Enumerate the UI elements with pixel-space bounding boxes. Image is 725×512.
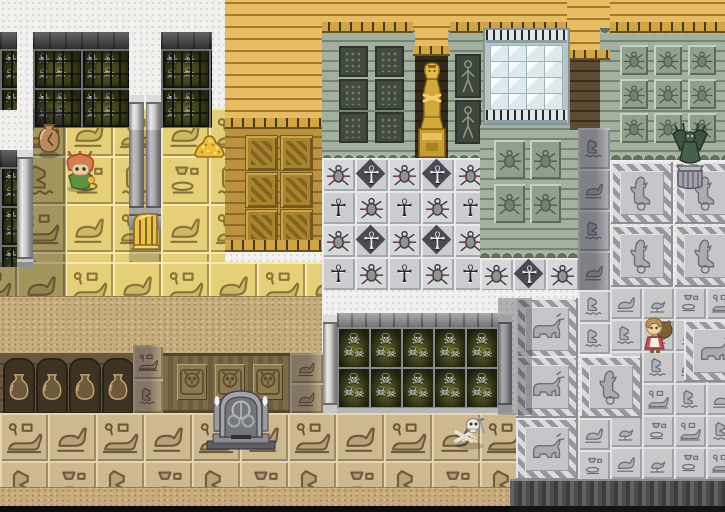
lion-face-panel [177, 364, 207, 400]
gold-roof-left [225, 0, 322, 122]
skull-icon: ☠ [439, 386, 451, 399]
ankh-icon: ☥ [388, 191, 421, 224]
green-wall-mid [448, 30, 483, 160]
tile-duck [144, 413, 192, 461]
wall-panel-figure [455, 100, 481, 144]
scarab-relief-icon [622, 81, 646, 107]
tile-duck [336, 413, 384, 461]
skull-cage: ☠☠☠☠ [0, 206, 17, 247]
glass-block [526, 61, 545, 78]
mid-glyph-column-a [133, 345, 163, 413]
tile-bowls [432, 461, 480, 487]
heron-relief-icon [622, 173, 662, 213]
wall-panel-dark [339, 46, 368, 77]
tile-eagle [674, 383, 706, 415]
crenellation-alcove [413, 46, 450, 56]
tile-duck [610, 447, 642, 479]
eagle-glyph-icon [582, 294, 606, 318]
lion-face-icon [178, 366, 206, 398]
bowls-glyph-icon [165, 160, 205, 200]
panel-grid-ornament-icon [380, 51, 399, 72]
wall-panel-dark [375, 112, 404, 143]
eagle-glyph-icon [196, 465, 236, 487]
bowls-glyph-icon [340, 465, 380, 487]
tile-ankh: ☥ [355, 224, 388, 257]
scarab-glyph-icon [358, 194, 385, 221]
wall-panel-scarab [620, 79, 648, 109]
bird-glyph-icon [646, 451, 670, 475]
crenellation-column [567, 50, 610, 60]
bowls-glyph-icon [678, 451, 702, 475]
tile-lion92 [674, 415, 706, 447]
wall-top-band [33, 32, 129, 49]
tile-eagle [384, 461, 432, 487]
duck-glyph-icon [309, 266, 322, 296]
relief-face [684, 234, 725, 278]
eagle-glyph-icon [582, 326, 606, 350]
relief-face [620, 171, 664, 215]
lion92-glyph-icon [4, 417, 44, 457]
scarab-relief-icon [656, 47, 680, 73]
tile-lion92 [706, 287, 725, 319]
tile-duck [48, 413, 96, 461]
tile-bowls [674, 287, 706, 319]
tile-eagle [706, 415, 725, 447]
dark-brick-column [570, 54, 600, 130]
tile-eagle [209, 252, 225, 262]
tile-ankh: ☥ [454, 191, 480, 224]
tile-ankh: ☥ [454, 257, 480, 290]
cliff-band [510, 479, 725, 512]
lion92-glyph-icon [100, 417, 140, 457]
figure-relief-icon [458, 57, 478, 95]
tile-scarab [421, 191, 454, 224]
gold-door-panel [245, 135, 278, 171]
skull-icon: ☠ [343, 386, 355, 399]
scarab-relief-icon [656, 81, 680, 107]
glass-block [508, 77, 527, 94]
skull-icon: ☠ [375, 346, 387, 359]
gold-door-panel [280, 172, 313, 208]
urn-icon [39, 364, 65, 410]
skull-niche: ☠☠☠ [337, 327, 371, 369]
wall-panel-scarab [688, 79, 716, 109]
panel-grid-ornament-icon [380, 117, 399, 138]
scarab-relief-icon [622, 115, 646, 141]
cage-bars-icon [2, 51, 17, 88]
tile-lion92 [96, 413, 144, 461]
green-wall-left [322, 30, 415, 160]
glass-block [490, 45, 509, 62]
skull-icon: ☠ [450, 347, 461, 359]
cage-bars-icon [2, 208, 17, 245]
cage-bars-icon [83, 51, 129, 88]
cage-bars-icon [211, 51, 212, 88]
tile-large-heron [675, 225, 725, 287]
lion92-glyph-icon [678, 419, 702, 443]
gold-pile[interactable] [193, 123, 226, 159]
skull-icon: ☠ [450, 387, 461, 399]
ankh-icon: ☥ [322, 191, 355, 224]
bowls-glyph-icon [148, 465, 188, 487]
crenellation-roof-left [225, 118, 322, 129]
ankh-icon: ☥ [421, 224, 454, 257]
mid-glyph-column-b [290, 353, 323, 413]
tile-eagle [96, 461, 144, 487]
relief-face [525, 427, 569, 471]
wall-top-band [161, 32, 212, 49]
skull-icon: ☠ [407, 346, 419, 359]
tile-lion92 [161, 262, 209, 296]
scarab-glyph-icon [358, 260, 385, 287]
pillar-capital [323, 315, 337, 324]
glass-block [508, 93, 527, 110]
relief-face [693, 329, 725, 373]
tile-scarab [355, 257, 388, 290]
eagle-glyph-icon [614, 323, 638, 347]
tile-eagle [578, 322, 610, 354]
tile-duck [209, 262, 257, 296]
urn-icon [105, 364, 131, 410]
duck-glyph-icon [340, 417, 380, 457]
gold-panel-ornament-icon [251, 141, 272, 165]
map-layers: ☠☠☠☠☠☠☠☠☠☠☠☠☠☠☠☠☠☠☠☠☠☠☠☠☠☠☠☠☠☠☠☠☠☠☠☠☠☠☠☠… [0, 0, 725, 512]
tile-bird [610, 415, 642, 447]
skull-icon: ☠ [354, 387, 365, 399]
pillar-capital [129, 95, 144, 104]
crenellation-c [610, 22, 725, 33]
tile-scarab [322, 224, 355, 257]
tile-large-bull [684, 320, 725, 382]
skull-niche: ☠☠☠ [369, 327, 403, 369]
ankh-icon: ☥ [421, 158, 454, 191]
eagle-glyph-icon [213, 160, 225, 200]
tile-lion92 [257, 262, 305, 296]
cage-bars-icon [35, 51, 81, 88]
skull-cage: ☠☠☠☠ [209, 49, 212, 90]
gold-panel-ornament-icon [286, 141, 307, 165]
skull-icon: ☠ [439, 346, 451, 359]
urn-niche [36, 358, 68, 413]
window [483, 28, 570, 125]
glass-block [508, 45, 527, 62]
tile-bowls [674, 447, 706, 479]
gold-panel-ornament-icon [286, 215, 307, 239]
mandragora-sprite[interactable] [63, 151, 98, 193]
pillar-capital [146, 95, 161, 104]
tile-eagle [192, 461, 240, 487]
ankh-icon: ☥ [355, 158, 388, 191]
cage-bars-icon [211, 90, 212, 127]
tile-ankh: ☥ [421, 158, 454, 191]
crenellation-a [322, 22, 413, 33]
scarab-relief-icon [690, 81, 714, 107]
tile-eagle [0, 461, 48, 487]
skull-icon: ☠ [386, 347, 397, 359]
tile-scarab [388, 158, 421, 191]
wall-panel-scarab [620, 113, 648, 143]
heron-relief-icon [591, 367, 631, 407]
tile-lion92 [706, 447, 725, 479]
bull-relief-icon [695, 331, 725, 371]
bird-glyph-icon [646, 291, 670, 315]
lion92-glyph-icon [710, 291, 725, 315]
skull-icon: ☠ [407, 386, 419, 399]
panel-grid-ornament-icon [380, 84, 399, 105]
wall-top-band [337, 313, 498, 327]
skull-cage: ☠☠☠☠ [161, 88, 211, 128]
tile-eagle [578, 290, 610, 322]
cage-bars-icon [83, 90, 129, 127]
tile-duck [305, 262, 322, 296]
skull-niche: ☠☠☠ [369, 367, 403, 409]
skull-cage: ☠☠☠☠ [0, 88, 17, 110]
tile-bowls [144, 461, 192, 487]
tile-eagle [288, 461, 336, 487]
pharaoh-statue[interactable] [416, 57, 448, 159]
tile-lion92 [209, 204, 225, 252]
urn-niche [69, 358, 101, 413]
wall-top-band [0, 32, 17, 49]
sandy-band-bottom [0, 487, 510, 506]
tile-lion92 [384, 413, 432, 461]
eagle-glyph-icon [100, 465, 140, 487]
scarab-glyph-icon [325, 161, 352, 188]
lion92-glyph-icon [261, 266, 301, 296]
skullcage-c: ☠☠☠☠☠☠☠☠☠☠☠☠ [0, 150, 17, 267]
door-panel-wall [225, 128, 322, 246]
tile-lion92 [65, 262, 113, 296]
game-map-canvas[interactable]: ☠☠☠☠☠☠☠☠☠☠☠☠☠☠☠☠☠☠☠☠☠☠☠☠☠☠☠☠☠☠☠☠☠☠☠☠☠☠☠☠… [0, 0, 725, 512]
ankh-icon: ☥ [454, 191, 480, 224]
glass-block [526, 77, 545, 94]
lion92-glyph-icon [388, 417, 428, 457]
relief-face [589, 365, 633, 409]
duck-glyph-icon [117, 266, 157, 296]
duck-glyph-icon [165, 208, 205, 248]
skull-niche: ☠☠☠ [337, 367, 371, 409]
bowls-glyph-icon [646, 419, 670, 443]
cage-bars-icon [2, 90, 17, 110]
tile-duck [578, 418, 610, 450]
scarab-glyph-icon [391, 161, 418, 188]
lion92-glyph-icon [292, 417, 332, 457]
skull-icon: ☠ [354, 347, 365, 359]
skull-cage: ☠☠☠☠ [0, 49, 17, 90]
tile-lion92 [288, 413, 336, 461]
tile-duck [161, 204, 209, 252]
lion92-glyph-icon [165, 266, 205, 296]
wall-panel-dark [339, 112, 368, 143]
pillar-capital [17, 150, 33, 159]
skull-icon: ☠ [375, 386, 387, 399]
wall-panel-dark [339, 79, 368, 110]
eagle-glyph-icon [388, 465, 428, 487]
scarab-glyph-icon [424, 260, 451, 287]
ankh-icon: ☥ [355, 224, 388, 257]
tile-bowls [65, 252, 113, 262]
tile-duck [113, 262, 161, 296]
pillar-wall-c [17, 150, 33, 267]
tile-bowls [642, 415, 674, 447]
grave-monument[interactable] [205, 379, 277, 451]
scarab-relief-icon [690, 47, 714, 73]
duck-glyph-icon [614, 451, 638, 475]
glass-block [544, 77, 563, 94]
glass-block [544, 45, 563, 62]
cage-bars-icon [163, 90, 209, 127]
skullcage-b: ☠☠☠☠☠☠☠☠☠☠☠☠☠☠☠☠☠☠☠☠☠☠☠☠ [161, 32, 212, 128]
cast-shadow [498, 298, 532, 415]
fence-top-icon [486, 30, 567, 43]
lion92-glyph-icon [213, 208, 225, 248]
gold-panel-ornament-icon [251, 215, 272, 239]
relief-face [620, 234, 664, 278]
wall-panel-scarab [620, 45, 648, 75]
tile-duck [706, 383, 725, 415]
tile-ankh: ☥ [388, 257, 421, 290]
wall-panel-figure [455, 54, 481, 98]
glass-block [544, 61, 563, 78]
figure-relief-icon [458, 103, 478, 141]
glass-block [508, 61, 527, 78]
ankh-icon: ☥ [454, 257, 480, 290]
panel-grid-ornament-icon [344, 51, 363, 72]
ankh-icon: ☥ [322, 257, 355, 290]
eagle-glyph-icon [292, 465, 332, 487]
skull-niche: ☠☠☠ [401, 367, 435, 409]
scarab-glyph-icon [457, 161, 480, 188]
tile-bowls [240, 461, 288, 487]
duck-glyph-icon [213, 266, 253, 296]
doll-npc[interactable] [641, 315, 673, 357]
urn-icon [72, 364, 98, 410]
skull-cage: ☠☠☠☠ [81, 88, 129, 128]
duck-glyph-icon [710, 387, 725, 411]
skull-cage: ☠☠☠☠ [209, 88, 212, 128]
heron-relief-icon [686, 236, 725, 276]
lion92-glyph-icon [69, 266, 109, 296]
tile-eagle [610, 319, 642, 351]
skull-icon: ☠ [343, 346, 355, 359]
fence-bottom-icon [486, 110, 567, 123]
bull-relief-icon [527, 367, 567, 407]
skull-niche: ☠☠☠ [433, 327, 467, 369]
tile-scarab [388, 224, 421, 257]
gold-alcove-cap [413, 0, 450, 50]
bull-relief-icon [527, 429, 567, 469]
wall-top-band [0, 150, 17, 167]
urn-wall [0, 353, 133, 413]
tile-large-heron [611, 162, 673, 224]
tile-ankh: ☥ [388, 191, 421, 224]
gold-door-panel [280, 135, 313, 171]
glass-block [526, 93, 545, 110]
duck-glyph-icon [69, 208, 109, 248]
cast-shadow [0, 262, 33, 296]
bull-relief-icon [527, 309, 567, 349]
tile-duck [610, 287, 642, 319]
ankh-icon: ☥ [388, 257, 421, 290]
tile-bowls [578, 450, 610, 482]
urn-niche [3, 358, 35, 413]
lion92-glyph-icon [646, 387, 670, 411]
eagle-glyph-icon [678, 387, 702, 411]
skeleton-remains[interactable] [451, 413, 489, 451]
wall-panel-dark [375, 46, 404, 77]
tile-bowls [161, 252, 209, 262]
glass-block [544, 93, 563, 110]
tile-duck [65, 204, 113, 252]
pillar-skullwall-left [323, 315, 337, 413]
shade-overlay [290, 353, 323, 413]
gold-door-panel [245, 172, 278, 208]
gold-panel-ornament-icon [286, 178, 307, 202]
crenellation-door-wall [225, 240, 322, 252]
bowls-glyph-icon [582, 454, 606, 478]
duck-glyph-icon [148, 417, 188, 457]
wall-panel-scarab [654, 79, 682, 109]
tile-scarab [355, 191, 388, 224]
tile-ankh: ☥ [322, 257, 355, 290]
eagle-glyph-icon [4, 465, 44, 487]
tile-large-bull [516, 418, 578, 480]
skull-cage: ☠☠☠☠ [0, 167, 17, 208]
urn-niche [102, 358, 133, 413]
gold-panel-ornament-icon [251, 178, 272, 202]
tile-eagle [209, 156, 225, 204]
skull-cage: ☠☠☠☠ [161, 49, 211, 90]
ankh-field: ☥☥☥☥☥☥☥☥☥☥ [322, 158, 480, 290]
tile-lion92 [0, 413, 48, 461]
tile-scarab [454, 224, 480, 257]
cage-bars-icon [163, 51, 209, 88]
tile-ankh: ☥ [355, 158, 388, 191]
skull-niche: ☠☠☠ [401, 327, 435, 369]
wall-panel-scarab [654, 45, 682, 75]
tile-bowls [336, 461, 384, 487]
glass-block [490, 77, 509, 94]
panel-grid-ornament-icon [344, 117, 363, 138]
golden-harp[interactable] [127, 209, 163, 251]
broken-pot[interactable] [33, 121, 65, 159]
lion92-glyph-icon [710, 451, 725, 475]
tile-ankh: ☥ [421, 224, 454, 257]
shade-overlay [133, 345, 163, 413]
skull-cage: ☠☠☠☠ [81, 127, 129, 128]
scarab-glyph-icon [424, 194, 451, 221]
skull-icon: ☠ [418, 347, 429, 359]
panel-grid-ornament-icon [344, 84, 363, 105]
duck-glyph-icon [52, 417, 92, 457]
skull-icon: ☠ [418, 387, 429, 399]
skull-niche-wall: ☠☠☠☠☠☠☠☠☠☠☠☠☠☠☠☠☠☠☠☠☠☠☠☠☠☠☠☠☠☠☠☠☠☠☠☠ [337, 313, 498, 413]
tile-bowls [161, 156, 209, 204]
tile-lion92 [642, 383, 674, 415]
black-strip [0, 506, 510, 512]
glass-block [490, 93, 509, 110]
scarab-glyph-icon [391, 227, 418, 254]
duck-glyph-icon [582, 422, 606, 446]
tile-scarab [322, 158, 355, 191]
tile-ankh: ☥ [322, 191, 355, 224]
bowls-glyph-icon [678, 291, 702, 315]
tile-bird [642, 447, 674, 479]
scarab-glyph-icon [325, 227, 352, 254]
skullcage-sliver: ☠☠☠☠☠☠☠☠ [0, 32, 17, 110]
urn-icon [6, 364, 32, 410]
gargoyle-statue[interactable] [670, 122, 710, 196]
